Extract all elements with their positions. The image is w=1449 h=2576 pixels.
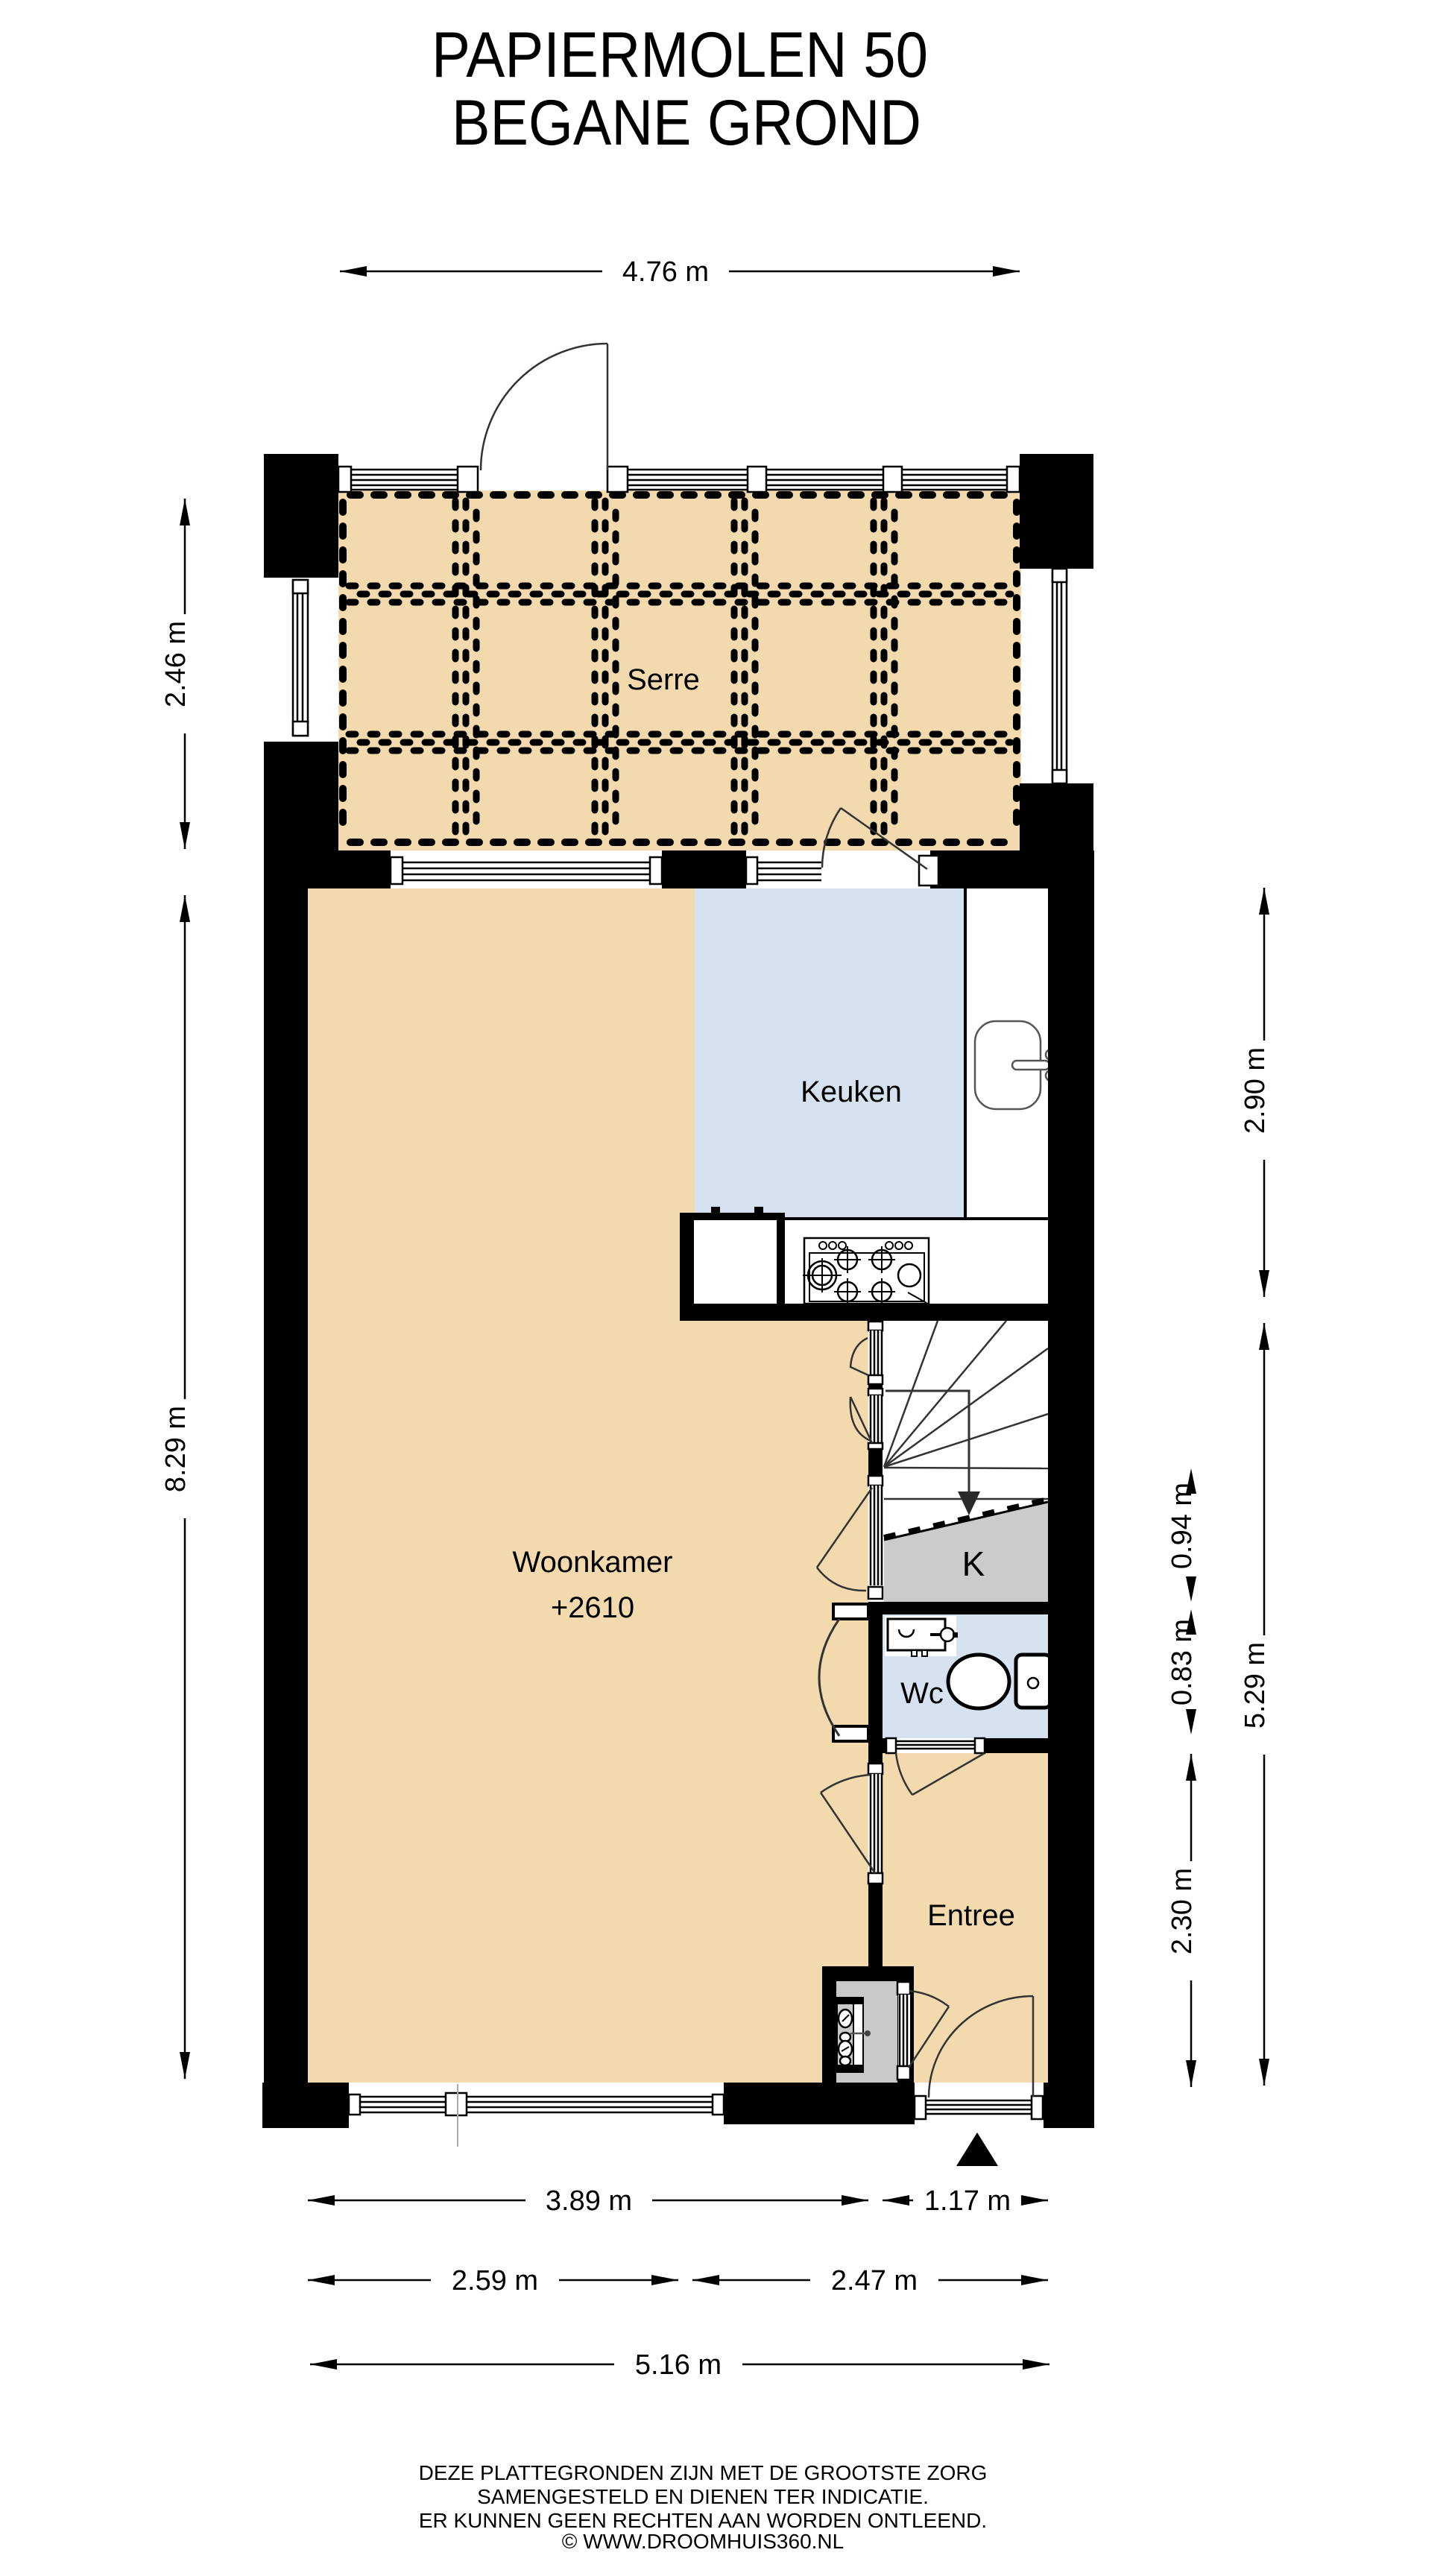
svg-text:5.29 m: 5.29 m <box>1240 1642 1271 1729</box>
svg-text:2.30 m: 2.30 m <box>1167 1868 1198 1954</box>
svg-text:Wc: Wc <box>900 1677 944 1710</box>
svg-text:0.94 m: 0.94 m <box>1167 1483 1198 1569</box>
svg-text:BEGANE GROND: BEGANE GROND <box>452 87 921 159</box>
svg-text:2.59 m: 2.59 m <box>452 2265 538 2296</box>
svg-text:1.17 m: 1.17 m <box>924 2185 1011 2217</box>
svg-text:Serre: Serre <box>627 663 700 696</box>
svg-text:3.89 m: 3.89 m <box>546 2185 632 2217</box>
svg-text:4.76 m: 4.76 m <box>622 256 709 288</box>
svg-text:PAPIERMOLEN 50: PAPIERMOLEN 50 <box>432 19 928 91</box>
svg-text:Entree: Entree <box>927 1899 1015 1932</box>
svg-text:ER KUNNEN GEEN RECHTEN AAN WOR: ER KUNNEN GEEN RECHTEN AAN WORDEN ONTLEE… <box>419 2509 987 2532</box>
svg-text:SAMENGESTELD EN DIENEN TER IND: SAMENGESTELD EN DIENEN TER INDICATIE. <box>477 2485 929 2508</box>
svg-text:0.83 m: 0.83 m <box>1167 1619 1198 1705</box>
svg-text:2.90 m: 2.90 m <box>1240 1047 1271 1134</box>
svg-text:2.46 m: 2.46 m <box>160 621 192 707</box>
svg-text:8.29 m: 8.29 m <box>160 1406 192 1492</box>
svg-text:K: K <box>962 1544 985 1583</box>
svg-text:+2610: +2610 <box>551 1591 634 1624</box>
svg-text:DEZE PLATTEGRONDEN ZIJN MET DE: DEZE PLATTEGRONDEN ZIJN MET DE GROOTSTE … <box>419 2461 988 2484</box>
svg-text:5.16 m: 5.16 m <box>635 2349 722 2381</box>
svg-text:Woonkamer: Woonkamer <box>513 1546 673 1579</box>
svg-text:Keuken: Keuken <box>801 1076 902 1108</box>
svg-text:2.47 m: 2.47 m <box>831 2265 918 2296</box>
svg-text:© WWW.DROOMHUIS360.NL: © WWW.DROOMHUIS360.NL <box>562 2530 844 2553</box>
